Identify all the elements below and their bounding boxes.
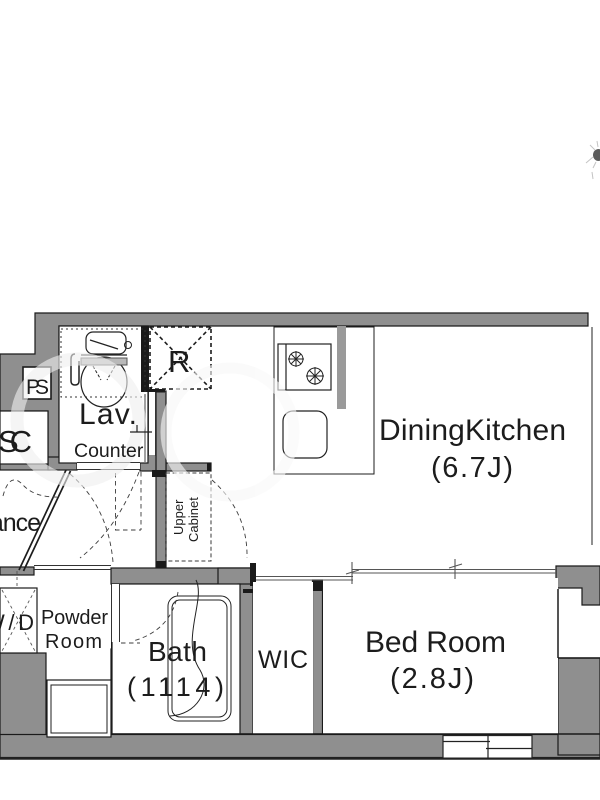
svg-text:(1114): (1114) [127,672,224,702]
svg-text:DiningKitchen: DiningKitchen [379,414,566,447]
svg-text:R: R [168,344,190,379]
svg-text:Bath: Bath [148,636,207,667]
svg-text:WIC: WIC [258,646,308,674]
svg-text:Lav.: Lav. [79,398,137,431]
svg-text:Powder: Powder [41,607,108,629]
svg-text:Room: Room [45,631,102,653]
svg-text:Cabinet: Cabinet [186,497,201,542]
svg-text:SC: SC [0,424,32,459]
svg-text:Upper: Upper [171,499,186,535]
svg-text:(2.8J): (2.8J) [390,663,474,695]
svg-text:Counter: Counter [74,440,144,462]
svg-text:(6.7J): (6.7J) [431,452,513,484]
svg-text:Entrance: Entrance [0,509,41,537]
svg-text:PS: PS [26,376,49,399]
svg-text:Bed Room: Bed Room [365,626,506,659]
